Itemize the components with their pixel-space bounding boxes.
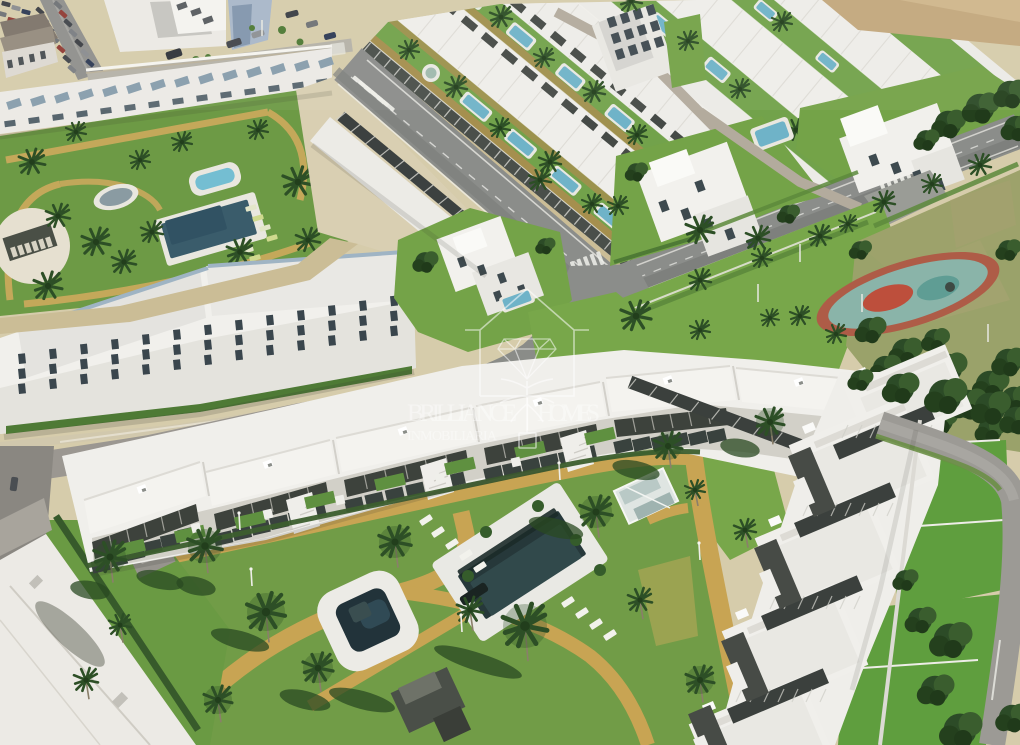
svg-text:HOMES: HOMES [537, 400, 600, 427]
svg-text:BRILLIANCE: BRILLIANCE [407, 400, 517, 427]
svg-text:INMOBILIARIA: INMOBILIARIA [407, 429, 498, 444]
